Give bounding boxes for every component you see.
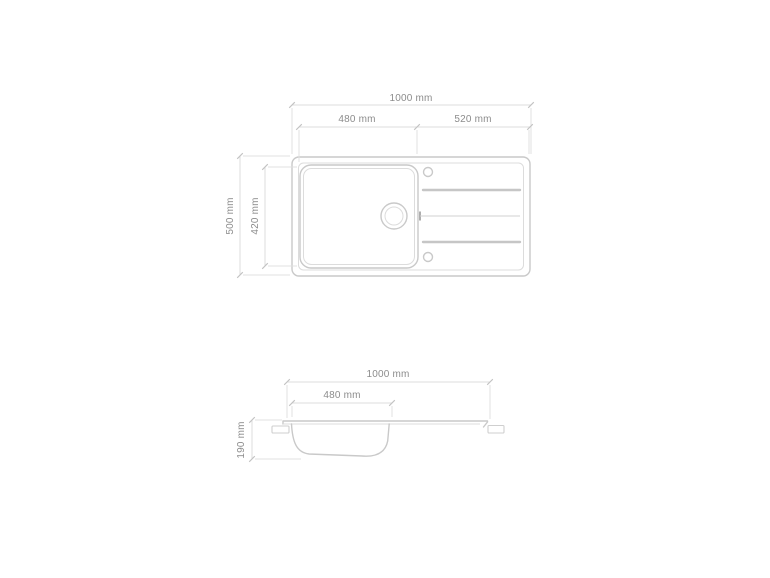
side-dim-total-width: 1000 mm	[284, 369, 493, 419]
top-dim-basin-drainer-split: 480 mm 520 mm	[296, 114, 533, 162]
top-dim-drainer-width-label: 520 mm	[454, 114, 491, 125]
drawing-svg: 1000 mm 480 mm 520 mm 50	[0, 0, 770, 578]
mounting-clip-right	[488, 426, 504, 434]
side-dim-basin-width-label: 480 mm	[323, 390, 360, 401]
sink-technical-drawing: 1000 mm 480 mm 520 mm 50	[0, 0, 770, 578]
top-dim-total-depth-label: 500 mm	[225, 197, 236, 234]
basin-outline	[300, 165, 418, 268]
side-view-sink-profile	[272, 421, 504, 456]
top-view-sink-body	[292, 157, 530, 276]
top-dim-total-width: 1000 mm	[289, 93, 534, 154]
side-dim-basin-width: 480 mm	[289, 390, 395, 417]
top-dim-basin-depth: 420 mm	[250, 164, 297, 269]
side-view: 1000 mm 480 mm 190 mm	[236, 369, 504, 462]
top-view: 1000 mm 480 mm 520 mm 50	[225, 93, 534, 278]
basin-bowl-profile	[292, 424, 390, 456]
mounting-clip-left	[272, 426, 289, 433]
side-dim-basin-height-label: 190 mm	[236, 421, 247, 458]
side-dim-total-width-label: 1000 mm	[366, 369, 409, 380]
top-dim-basin-width-label: 480 mm	[338, 114, 375, 125]
top-dim-total-width-label: 1000 mm	[389, 93, 432, 104]
top-dim-basin-depth-label: 420 mm	[250, 197, 261, 234]
